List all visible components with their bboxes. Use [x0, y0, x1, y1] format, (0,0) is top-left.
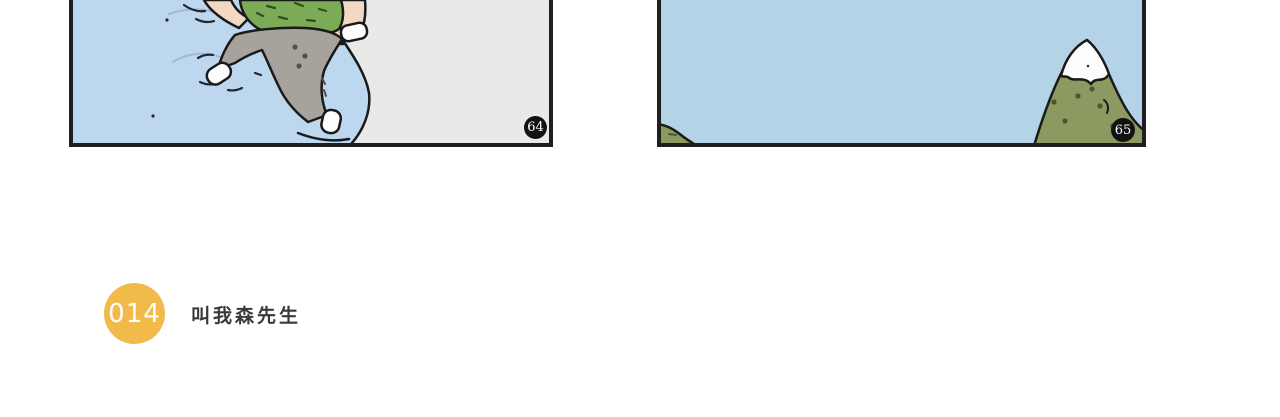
chapter-number-badge: 014 — [104, 283, 165, 344]
panel-number-badge: 64 — [524, 116, 547, 139]
panel-number-badge: 65 — [1111, 118, 1135, 142]
comic-panel-65: 65 — [657, 0, 1146, 147]
speck-dot — [165, 18, 168, 21]
climbing-scene-illustration — [73, 0, 549, 143]
gray-slope — [342, 0, 550, 143]
comic-page: 64 65 — [0, 0, 1280, 417]
snow-dot — [1087, 65, 1090, 68]
chapter-title: 叫我森先生 — [191, 301, 301, 328]
comic-panel-64: 64 — [69, 0, 553, 147]
speck-dot — [151, 114, 154, 117]
mountain-scene-illustration — [661, 0, 1142, 143]
